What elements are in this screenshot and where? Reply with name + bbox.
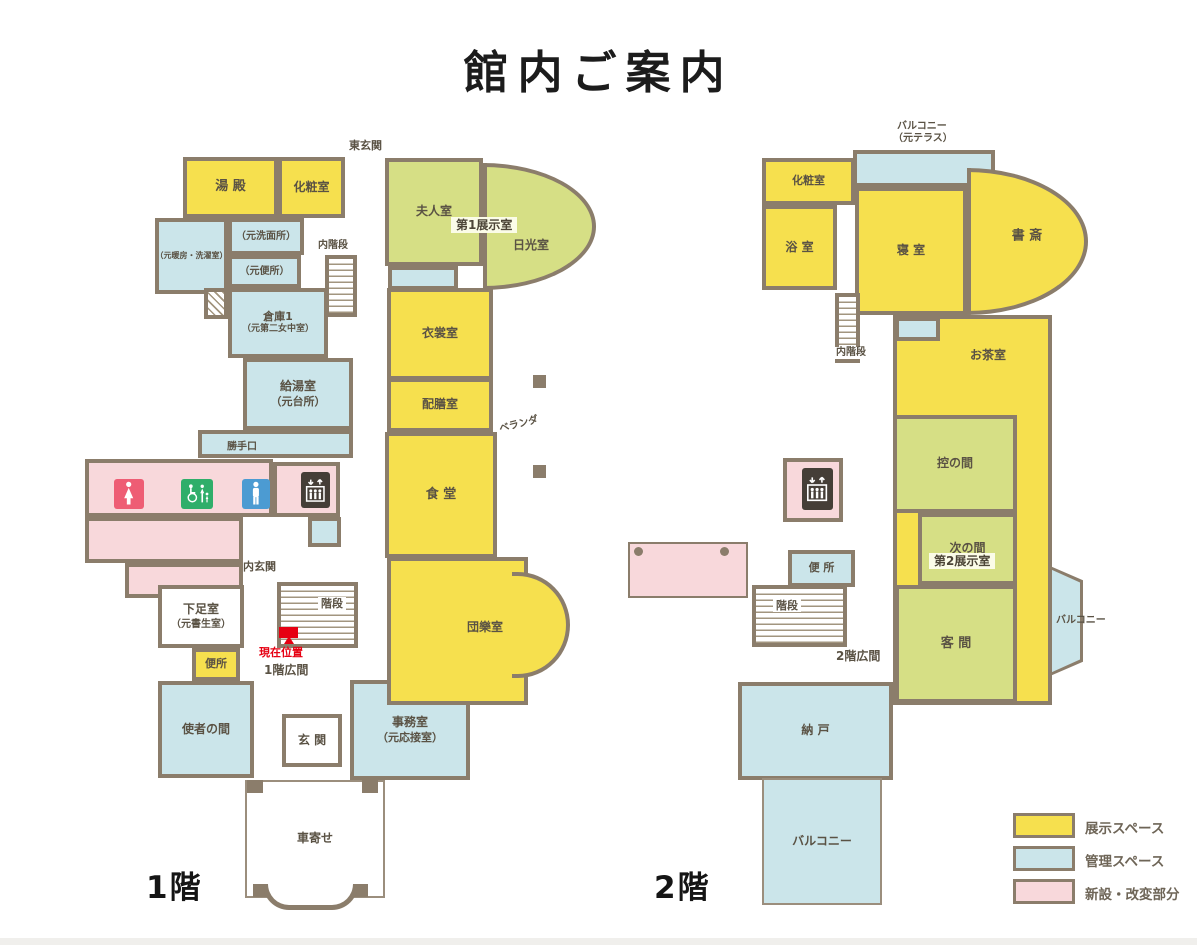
room-shisha-no-ma: 使者の間 [158,681,254,778]
exhibit1-badge: 第1展示室 [451,217,517,233]
room-service-winder-stairs [204,288,228,319]
page-title: 館内ご案内 [0,36,1197,101]
room-kurumayose: 車寄せ [245,780,385,898]
room-kyakuma-label: 客 間 [941,636,972,653]
room-yokushitsu-label: 浴 室 [785,240,813,256]
legend-label-3: 新設・改変部分 [1085,883,1180,903]
room-souko-1-label: 倉庫1 [263,310,293,324]
room-katteguchi: 勝手口 [198,430,353,458]
legend-swatch-3 [1013,879,1075,904]
room-haizenshitsu-label: 配膳室 [422,397,458,413]
current-location-label: 現在位置 [259,644,303,660]
room-kaidan-2f [752,585,847,647]
room-kyutoshitsu-label: 給湯室 [280,379,316,395]
legend-label-2: 管理スペース [1085,850,1164,870]
room-jimushitsu-label: 事務室 [392,715,428,731]
porch-post-2 [362,780,378,793]
room-shinshitsu-label: 寝 室 [897,243,925,259]
floor1-label: 1階 [146,862,203,907]
room-benjo-2f: 便 所 [788,550,855,587]
room-yudono: 湯 殿 [183,157,278,218]
uchigenkan-label: 内玄関 [243,560,276,573]
room-balcony-south: バルコニー [762,778,882,905]
room-gesokushitsu: 下足室（元書生室） [158,585,244,648]
room-moto-danbo-sentakushitsu-label: （元暖房・洗濯室） [156,251,228,261]
room-shisha-no-ma-label: 使者の間 [182,722,230,738]
hall-2f-label: 2階広間 [836,649,880,663]
higashi-genkan-label: 東玄関 [349,139,382,152]
room-nikkoshitsu-label: 日光室 [513,238,549,254]
current-location-triangle-icon [284,636,294,644]
floor-plan-canvas: 館内ご案内 1階 2階 湯 殿化粧室（元暖房・洗濯室）（元洗面所）（元便所）倉庫… [0,0,1197,945]
page-bottom-edge [0,938,1197,945]
room-keshoshitsu-1f-label: 化粧室 [293,180,329,196]
room-hikae-no-ma-label: 控の間 [937,456,973,472]
balcony-north-label-line2: （元テラス） [893,133,953,145]
room-katteguchi-label: 勝手口 [227,441,257,454]
floor2-label: 2階 [654,862,711,907]
room-keshoshitsu-2f-label: 化粧室 [792,174,825,188]
room-fujinshitsu-label: 夫人室 [416,204,452,220]
room-jimushitsu-sublabel: （元応接室） [377,731,443,745]
room-kyutoshitsu: 給湯室（元台所） [243,358,353,430]
room-shokudo-label: 食 堂 [426,487,457,504]
room-shinshitsu: 寝 室 [855,187,967,315]
room-yudono-label: 湯 殿 [215,179,246,196]
room-moto-senmenjo: （元洗面所） [228,218,304,255]
uchikaidan-label-1f: 内階段 [318,240,348,252]
room-benjo-2f-label: 便 所 [809,561,835,575]
room-shosai: 書 斎 [967,168,1088,315]
room-deck-dot-2 [720,547,729,556]
room-yokushitsu: 浴 室 [762,205,837,290]
balcony-east-label: バルコニー [1056,615,1106,627]
room-gesokushitsu-sublabel: （元書生室） [171,618,231,631]
room-souko-1: 倉庫1（元第二女中室） [228,288,328,358]
room-balcony-south-label: バルコニー [792,834,852,850]
balcony-north-label-line1: バルコニー [897,121,947,133]
room-moto-danbo-sentakushitsu: （元暖房・洗濯室） [155,218,228,294]
room-admin-strip-1f [388,266,458,290]
elevator-icon-1f [301,472,330,508]
room-fujinshitsu: 夫人室 [385,158,483,266]
porch-post-1 [247,780,263,793]
room-veranda-pillar-1 [533,375,546,388]
room-kyutoshitsu-sublabel: （元台所） [271,395,326,409]
room-veranda-pillar-2 [533,465,546,478]
room-moto-benjo: （元便所） [228,255,301,288]
exhibit2-badge: 第2展示室 [929,553,995,569]
room-genkan-label: 玄 関 [298,733,326,749]
room-danranshitsu: 団樂室 [387,557,528,705]
veranda-label: ベランダ [498,414,540,435]
ochashitsu-label: お茶室 [970,348,1006,362]
room-shokudo: 食 堂 [385,432,497,558]
room-danran-bay [512,572,570,678]
kaidan-label-1f: 階段 [318,597,346,610]
men-toilet-icon [242,479,270,509]
room-moto-senmenjo-label: （元洗面所） [236,230,296,243]
room-kurumayose-label: 車寄せ [297,831,333,847]
room-renovated-deck [628,542,748,598]
elevator-icon-2f [802,468,833,510]
room-keshoshitsu-2f: 化粧室 [762,158,855,205]
uchikaidan-label-2f: 内階段 [833,347,869,359]
room-genkan: 玄 関 [282,714,342,767]
room-ishoshitsu-label: 衣裳室 [422,326,458,342]
accessible-toilet-icon [181,479,213,509]
room-nando-label: 納 戸 [801,723,829,739]
hall-1f-label: 1階広間 [264,663,308,677]
room-nando: 納 戸 [738,682,893,780]
room-small-admin-1f [308,517,341,547]
room-benjo-1f: 便所 [192,648,240,681]
room-keshoshitsu-1f: 化粧室 [278,157,345,218]
room-toilet-block-mid [85,517,243,563]
legend-swatch-2 [1013,846,1075,871]
kaidan-label-2f: 階段 [773,599,801,612]
room-admin-small-2f [895,317,940,341]
room-uchikaidan-1f [325,255,357,317]
room-danranshitsu-label: 団樂室 [467,620,503,636]
room-ishoshitsu: 衣裳室 [387,288,493,380]
women-toilet-icon [114,479,144,509]
room-tsugi-no-ma: 次の間 [918,513,1017,585]
room-gesokushitsu-label: 下足室 [183,602,219,618]
room-moto-benjo-label: （元便所） [240,265,290,278]
porch-arch [263,884,358,910]
room-kyakuma: 客 間 [895,585,1017,703]
room-haizenshitsu: 配膳室 [387,378,493,432]
legend-label-1: 展示スペース [1085,817,1164,837]
room-shosai-label: 書 斎 [1012,229,1043,246]
legend-swatch-1 [1013,813,1075,838]
room-benjo-1f-label: 便所 [205,657,227,671]
room-deck-dot-1 [634,547,643,556]
room-souko-1-sublabel: （元第二女中室） [242,324,314,336]
room-hikae-no-ma: 控の間 [893,415,1017,513]
